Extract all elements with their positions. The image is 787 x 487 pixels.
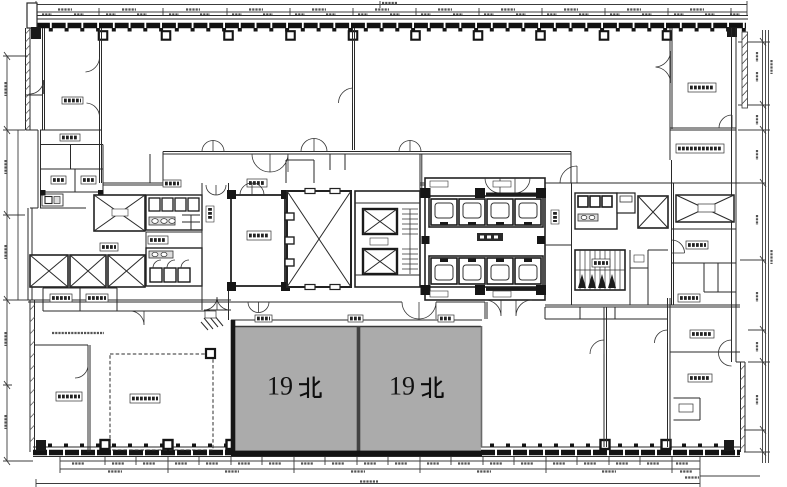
svg-text:19: 19 [389,372,415,401]
svg-text:19: 19 [267,372,293,401]
